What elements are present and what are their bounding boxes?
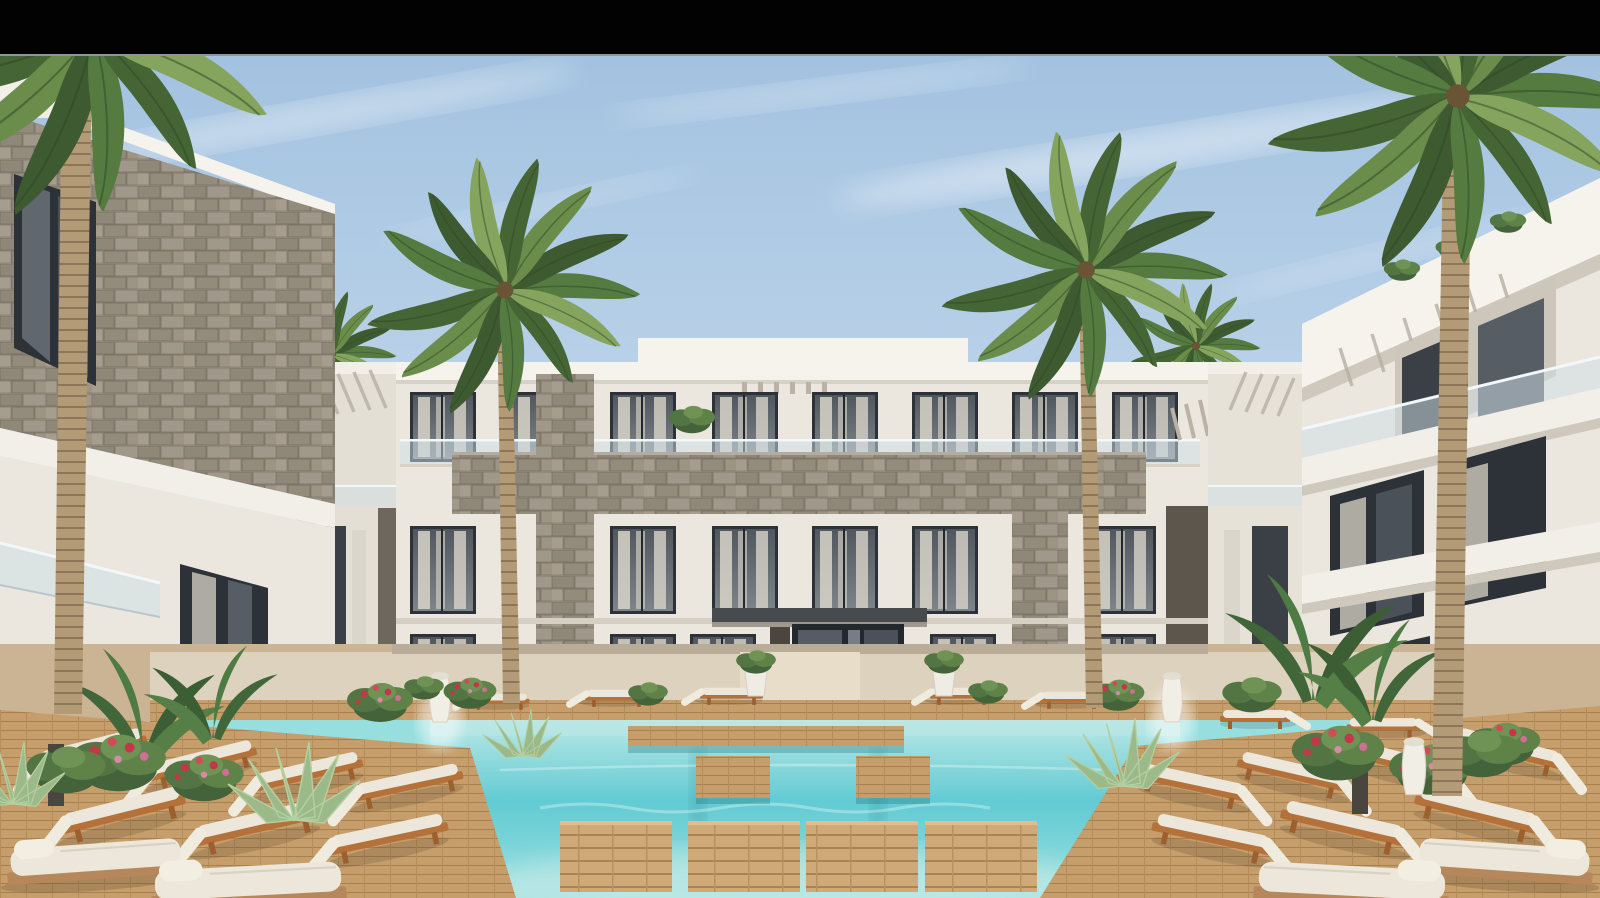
render-canvas (0, 56, 1600, 898)
window (712, 526, 778, 614)
window (610, 526, 676, 614)
screenshot-root (0, 0, 1600, 898)
window (410, 526, 476, 614)
floating-platforms (560, 821, 1037, 892)
pool-pier (696, 756, 770, 798)
window (812, 526, 878, 614)
window (912, 526, 978, 614)
white-vase (1402, 737, 1425, 795)
letterbox-top-bar (0, 0, 1600, 56)
pool-walkway (628, 726, 904, 746)
render-scene (0, 56, 1600, 898)
pool-pier (856, 756, 930, 798)
